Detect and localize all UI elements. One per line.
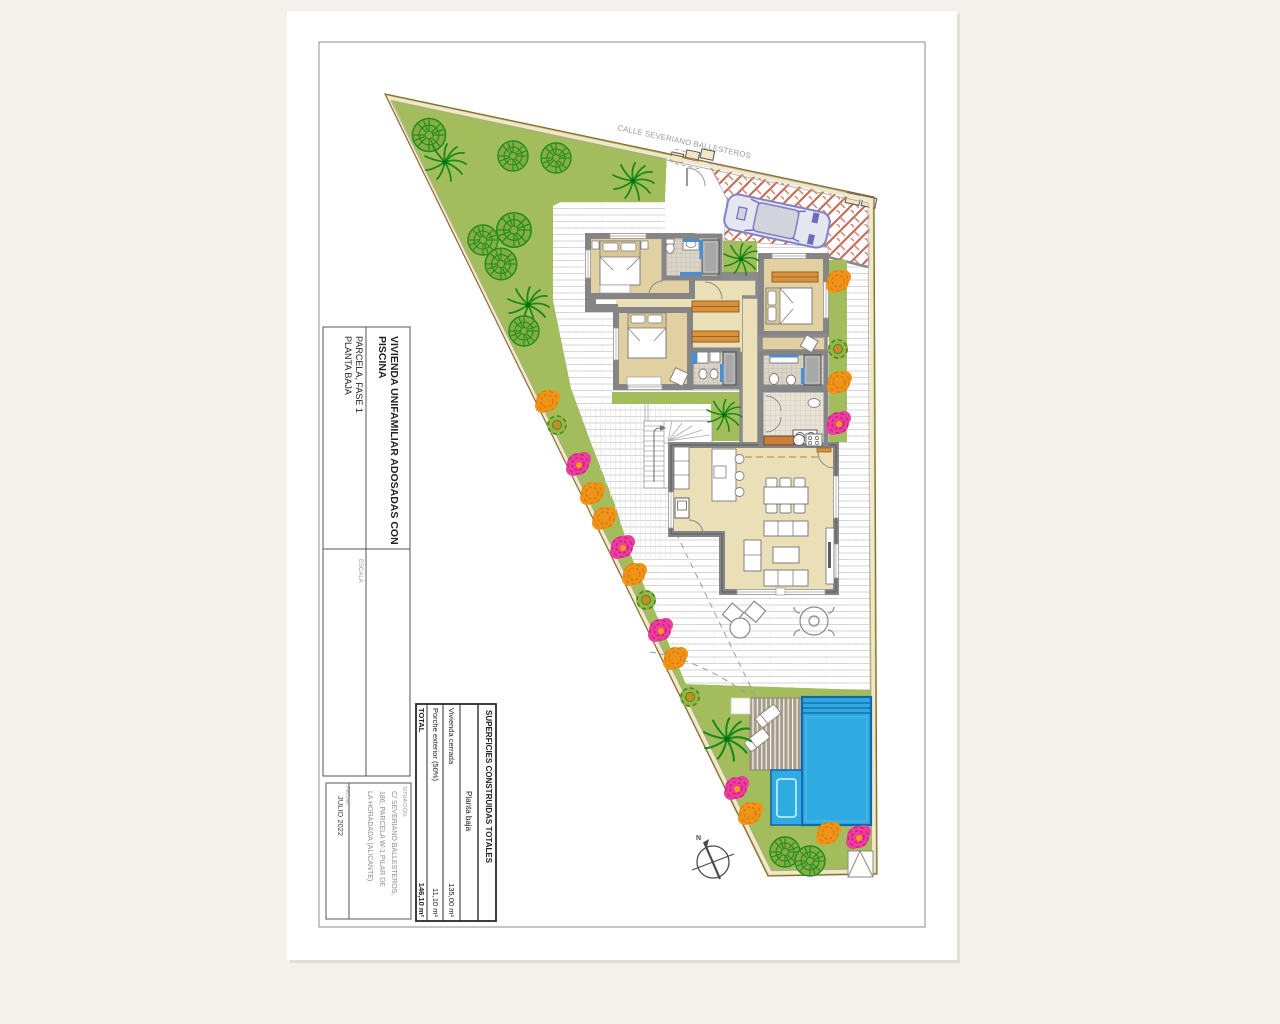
svg-text:JULIO 2022: JULIO 2022 <box>336 796 345 836</box>
svg-text:N: N <box>696 835 701 842</box>
svg-text:VIVIENDA UNIFAMILIAR ADOSADAS: VIVIENDA UNIFAMILIAR ADOSADAS CON <box>388 336 400 545</box>
svg-text:C/ SEVERIANO BALLESTEROS,: C/ SEVERIANO BALLESTEROS, <box>390 791 397 895</box>
svg-text:186, PARCELA W-1 PILAR DE: 186, PARCELA W-1 PILAR DE <box>378 791 385 887</box>
svg-text:11,10 m²: 11,10 m² <box>431 888 440 918</box>
svg-text:PISCINA: PISCINA <box>376 336 388 379</box>
svg-text:ESCALA: ESCALA <box>357 559 363 583</box>
svg-text:PLANTA BAJA: PLANTA BAJA <box>343 336 353 395</box>
svg-text:TOTAL: TOTAL <box>417 708 426 733</box>
svg-text:Planta baja: Planta baja <box>464 791 473 832</box>
svg-text:LA HORADADA (ALICANTE): LA HORADADA (ALICANTE) <box>366 791 373 881</box>
svg-text:SUPERFICIES CONSTRUIDAS TOTALE: SUPERFICIES CONSTRUIDAS TOTALES <box>484 710 493 864</box>
svg-text:Porche exterior (50%): Porche exterior (50%) <box>431 708 440 781</box>
svg-text:SITUACIÓN:: SITUACIÓN: <box>401 786 408 818</box>
svg-text:PARCELA, FASE 1: PARCELA, FASE 1 <box>354 336 364 413</box>
svg-text:135,00 m²: 135,00 m² <box>447 883 456 917</box>
svg-text:146,10 m²: 146,10 m² <box>417 883 426 918</box>
svg-text:Vivienda cerrada: Vivienda cerrada <box>447 708 456 765</box>
